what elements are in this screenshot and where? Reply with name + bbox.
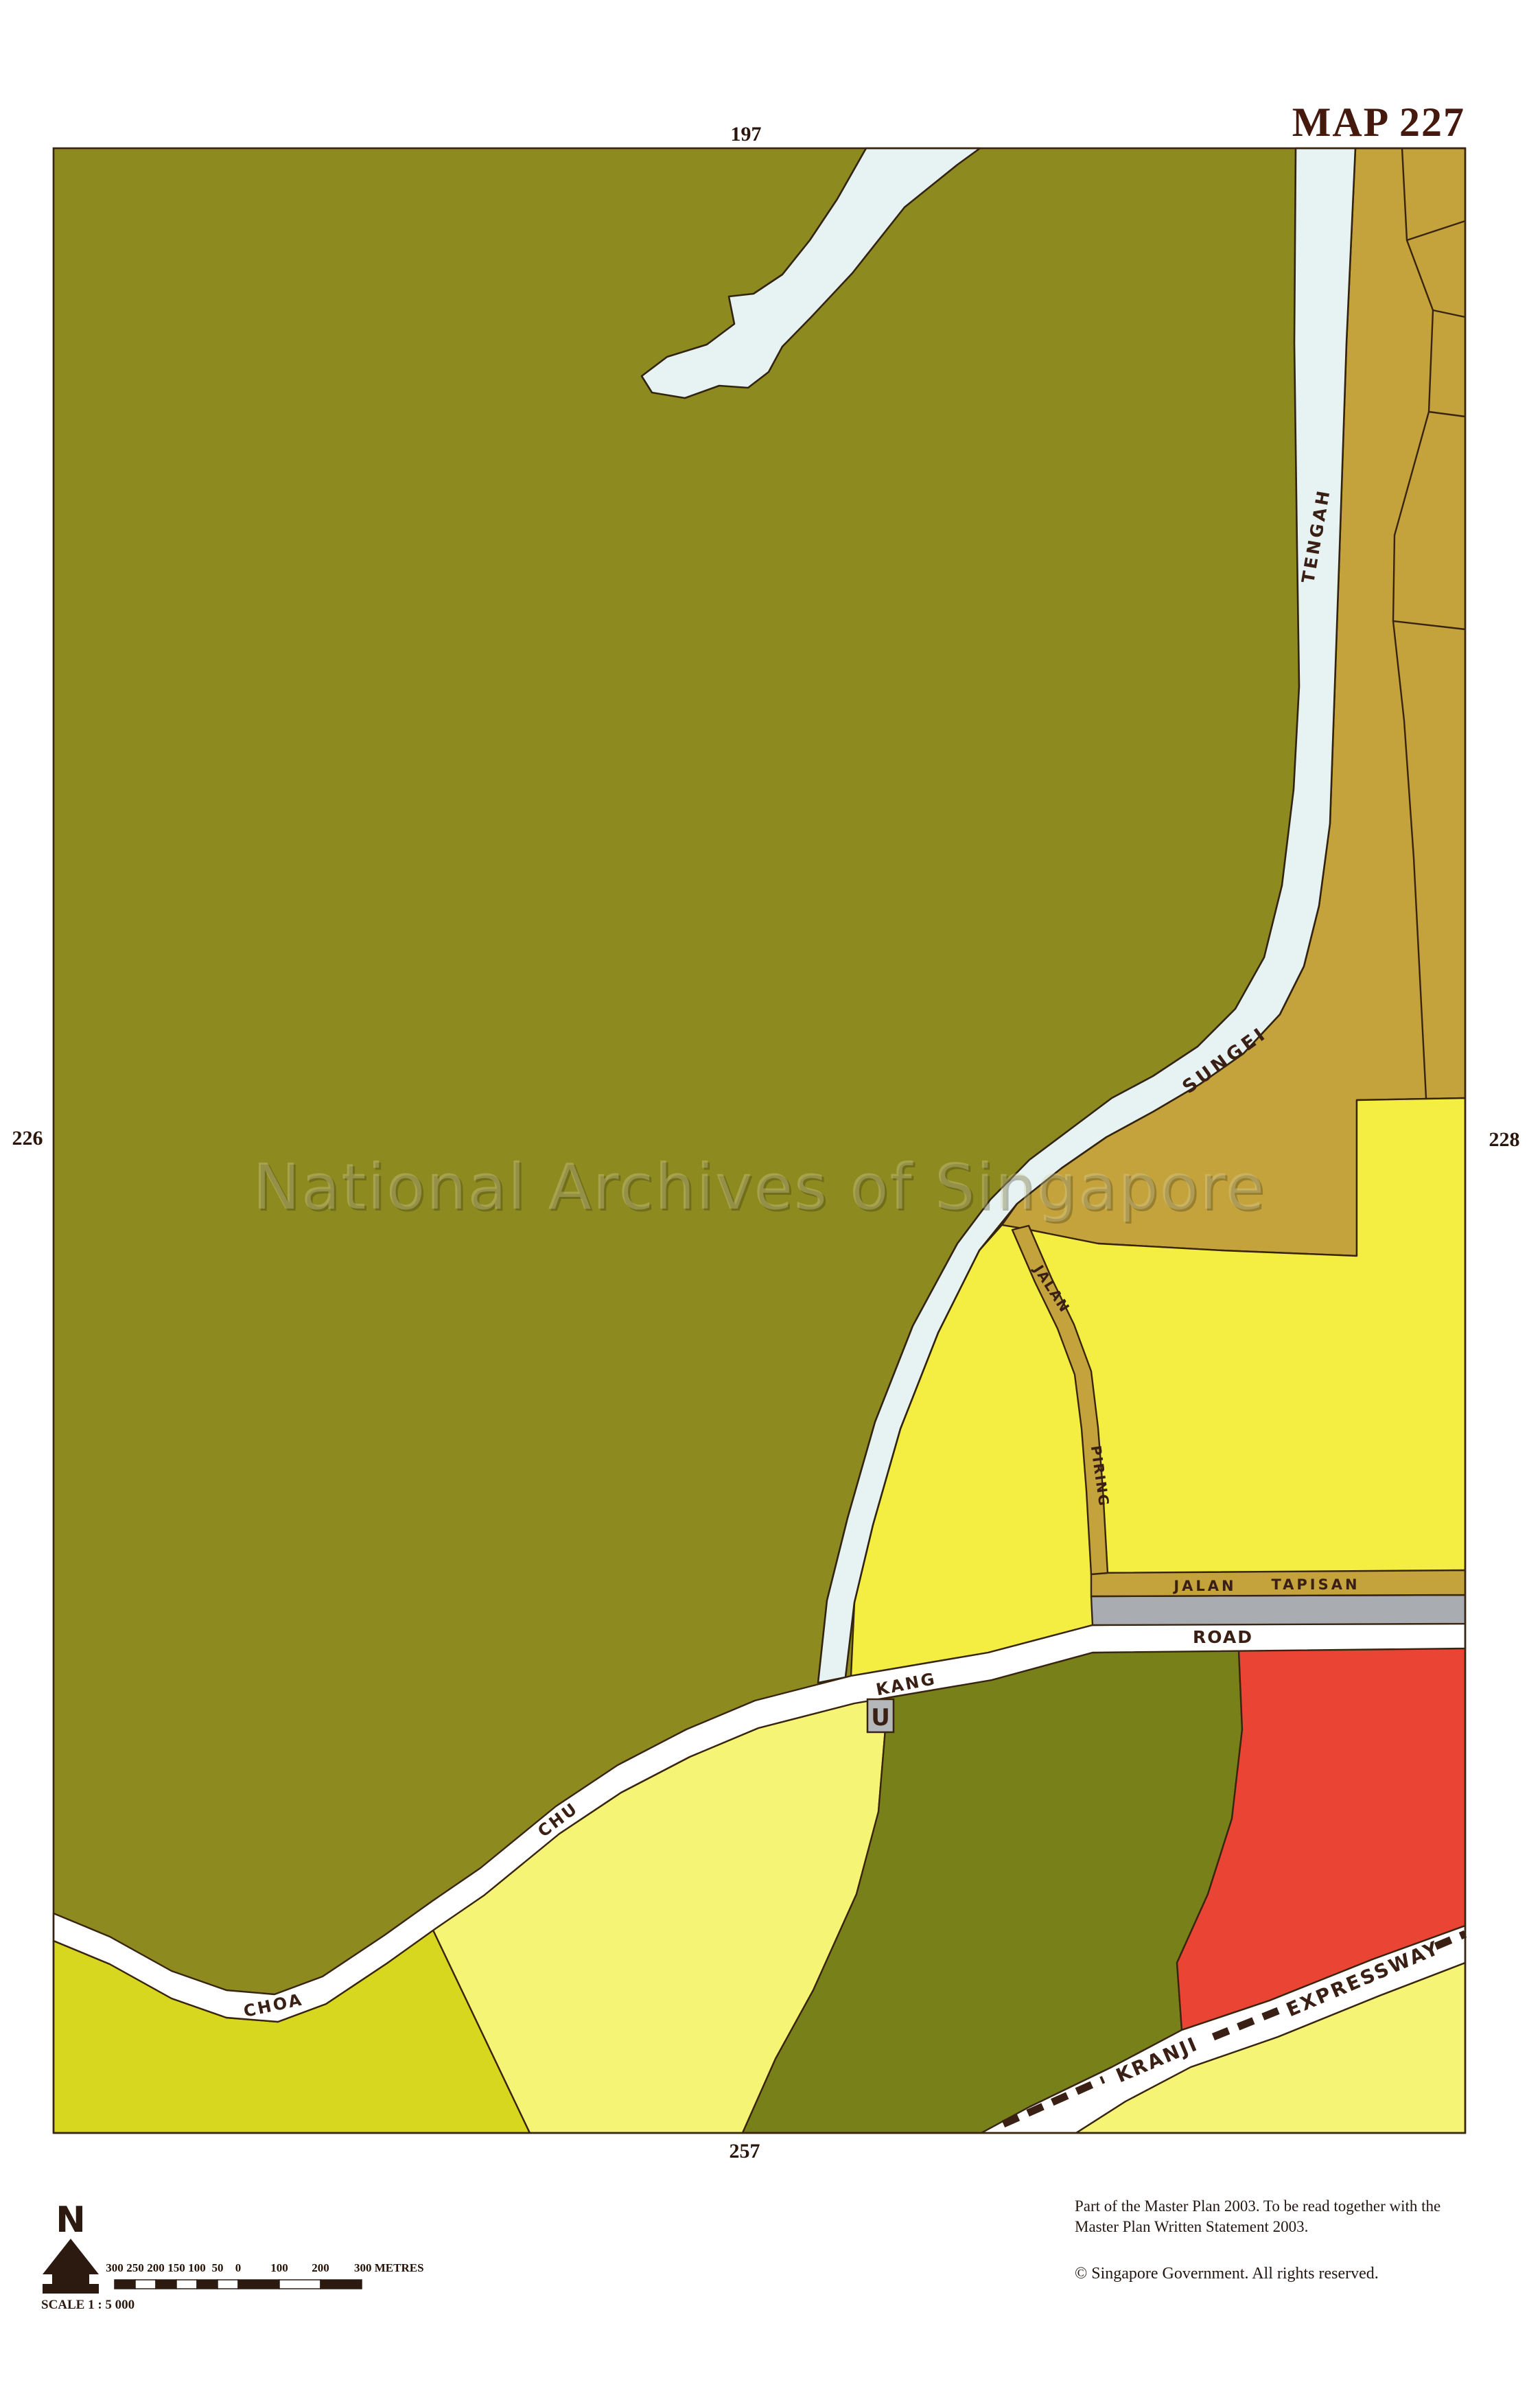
scale-segment: [176, 2280, 197, 2289]
scale-segment: [115, 2280, 135, 2289]
scale-tick: 0: [235, 2261, 242, 2274]
page-title: MAP 227: [1292, 100, 1465, 145]
master-plan-notes: Part of the Master Plan 2003. To be read…: [1075, 2197, 1440, 2283]
scale-segment: [197, 2280, 218, 2289]
sheet-number-top: 197: [731, 123, 762, 145]
scale-segment: [238, 2280, 279, 2289]
label-road: ROAD: [1193, 1627, 1253, 1647]
note-line-2: Master Plan Written Statement 2003.: [1075, 2218, 1308, 2235]
underpass-label: U: [871, 1704, 890, 1731]
scale-tick: 100: [188, 2261, 206, 2274]
label-jalan-tapisan-1: JALAN: [1172, 1578, 1236, 1594]
note-line-1: Part of the Master Plan 2003. To be read…: [1075, 2197, 1440, 2215]
sheet-number-left: 226: [12, 1127, 43, 1150]
scale-ratio-text: SCALE 1 : 5 000: [41, 2298, 135, 2312]
scale-tick-metres: 300 METRES: [354, 2261, 424, 2274]
north-arrow-group: N SCALE 1 : 5 000: [41, 2200, 135, 2312]
scale-segment: [156, 2280, 176, 2289]
sheet-number-right: 228: [1489, 1128, 1520, 1151]
watermark-text: National Archives of Singapore: [253, 1150, 1265, 1224]
scale-bar-segments: [115, 2280, 362, 2289]
road-reserve-strip: [1091, 1595, 1465, 1625]
scale-tick: 250: [126, 2261, 144, 2274]
scale-tick: 50: [212, 2261, 224, 2274]
scale-bar: 300 250 200 150 100 50 0 100 200 300 MET…: [106, 2261, 423, 2289]
scale-segment: [135, 2280, 156, 2289]
north-arrow-icon: [43, 2239, 99, 2294]
north-letter: N: [56, 2200, 86, 2241]
scale-segment: [320, 2280, 362, 2289]
scale-tick: 100: [270, 2261, 288, 2274]
map-regions: [54, 148, 1465, 2133]
scale-tick: 200: [147, 2261, 165, 2274]
scale-tick: 200: [312, 2261, 329, 2274]
scale-segment: [279, 2280, 320, 2289]
scale-tick: 150: [167, 2261, 185, 2274]
watermark: National Archives of Singapore National …: [253, 1150, 1268, 1226]
copyright-line: © Singapore Government. All rights reser…: [1075, 2265, 1379, 2283]
label-jalan-tapisan-2: TAPISAN: [1271, 1576, 1360, 1593]
scanned-map-page: U SUNGEI TENGAH CHOA CHU KANG ROAD JALAN…: [0, 0, 1540, 2391]
scale-bar-ticks: 300 250 200 150 100 50 0 100 200 300 MET…: [106, 2261, 423, 2274]
sheet-number-bottom: 257: [730, 2140, 760, 2162]
scale-tick: 300: [106, 2261, 124, 2274]
scale-segment: [218, 2280, 238, 2289]
